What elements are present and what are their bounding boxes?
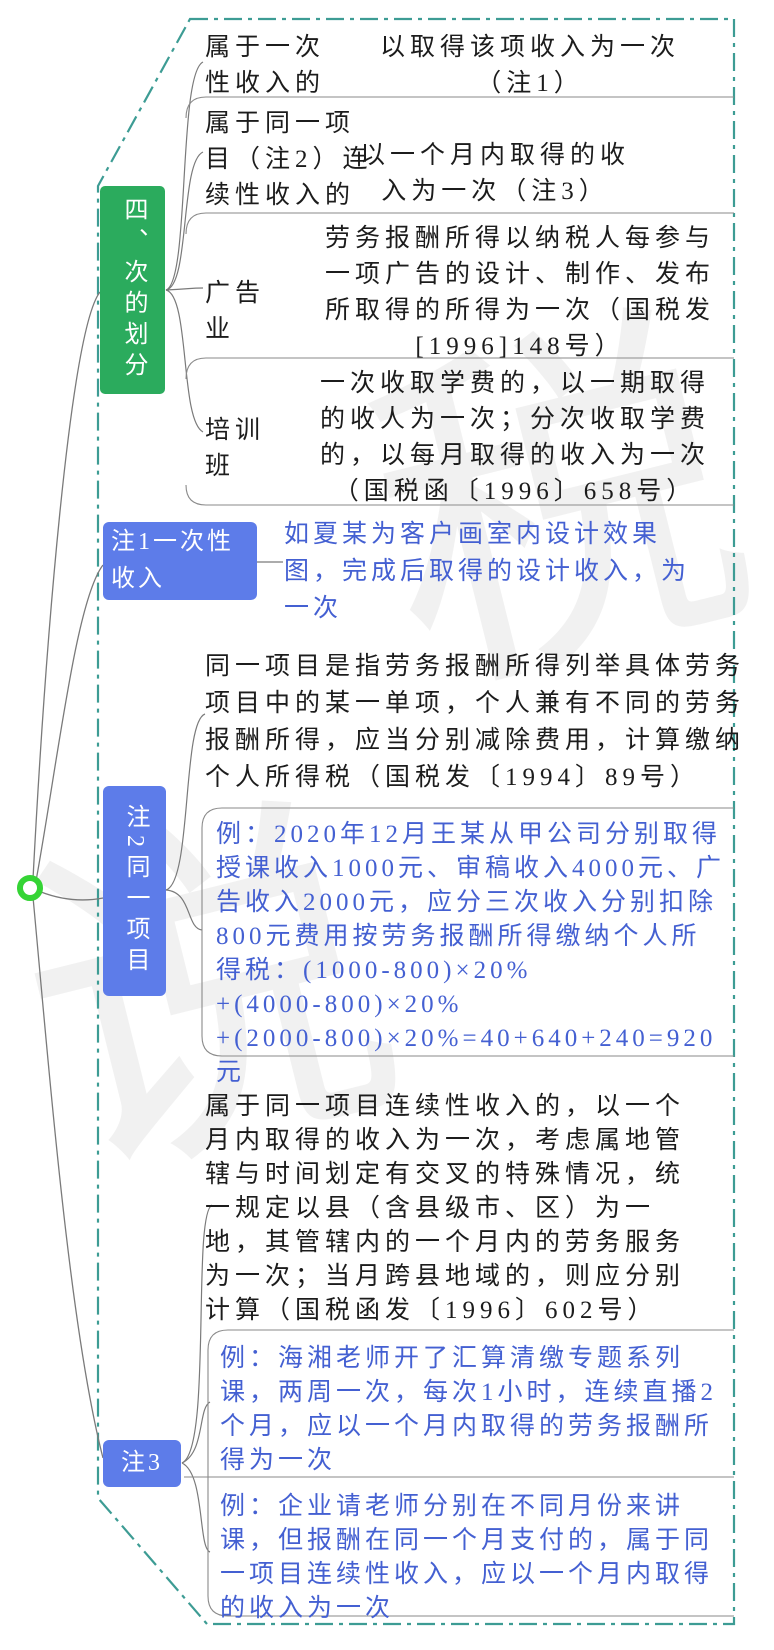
branch1-value[interactable]: 以取得该项收入为一次 （注1） <box>330 30 730 102</box>
connector <box>182 1463 210 1552</box>
note2-example[interactable]: 例：2020年12月王某从甲公司分别取得授课收入1000元、审稿收入4000元、… <box>216 818 728 1090</box>
connector <box>166 62 203 290</box>
connector <box>36 565 103 881</box>
topic-node[interactable]: 四、次的划分 <box>100 186 165 394</box>
note3-definition[interactable]: 属于同一项目连续性收入的，以一个月内取得的收入为一次，考虑属地管辖与时间划定有交… <box>205 1090 713 1328</box>
note1-example[interactable]: 如夏某为客户画室内设计效果图，完成后取得的设计收入，为一次 <box>284 516 694 627</box>
connector <box>33 292 100 879</box>
connector <box>33 897 103 1458</box>
branch4-value[interactable]: 一次收取学费的，以一期取得的收人为一次；分次收取学费的，以每月取得的收入为一次（… <box>315 366 715 510</box>
root-node[interactable] <box>20 878 40 898</box>
branch3-label[interactable]: 广告 业 <box>205 276 275 348</box>
connector <box>41 892 103 900</box>
branch4-label[interactable]: 培训 班 <box>205 413 275 485</box>
note2-node[interactable]: 注2同一项目 <box>103 786 166 996</box>
branch3-value[interactable]: 劳务报酬所得以纳税人每参与一项广告的设计、制作、发布所取得的所得为一次（国税发[… <box>325 221 715 365</box>
branch1-label[interactable]: 属于一次 性收入的 <box>205 30 345 102</box>
note2-label: 注2同一项目 <box>116 804 153 978</box>
mindmap-canvas: 税 说 四 <box>0 0 774 1650</box>
connector <box>166 890 202 930</box>
note3-example1[interactable]: 例：海湘老师开了汇算清缴专题系列课，两周一次，每次1小时，连续直播2个月，应以一… <box>220 1342 725 1478</box>
connector <box>166 714 205 890</box>
note3-node[interactable]: 注3 <box>103 1440 181 1487</box>
connector <box>182 1402 210 1463</box>
note3-label: 注3 <box>121 1445 163 1482</box>
branch2-value[interactable]: 以一个月内取得的收 入为一次（注3） <box>345 138 645 210</box>
connector <box>166 290 203 432</box>
topic-label: 四、次的划分 <box>114 197 151 383</box>
note1-label: 注1一次性收入 <box>111 524 249 598</box>
note3-example2[interactable]: 例：企业请老师分别在不同月份来讲课，但报酬在同一个月支付的，属于同一项目连续性收… <box>220 1490 725 1626</box>
note2-definition[interactable]: 同一项目是指劳务报酬所得列举具体劳务项目中的某一单项，个人兼有不同的劳务报酬所得… <box>205 648 745 796</box>
note1-node[interactable]: 注1一次性收入 <box>103 522 257 600</box>
connector <box>166 288 203 290</box>
